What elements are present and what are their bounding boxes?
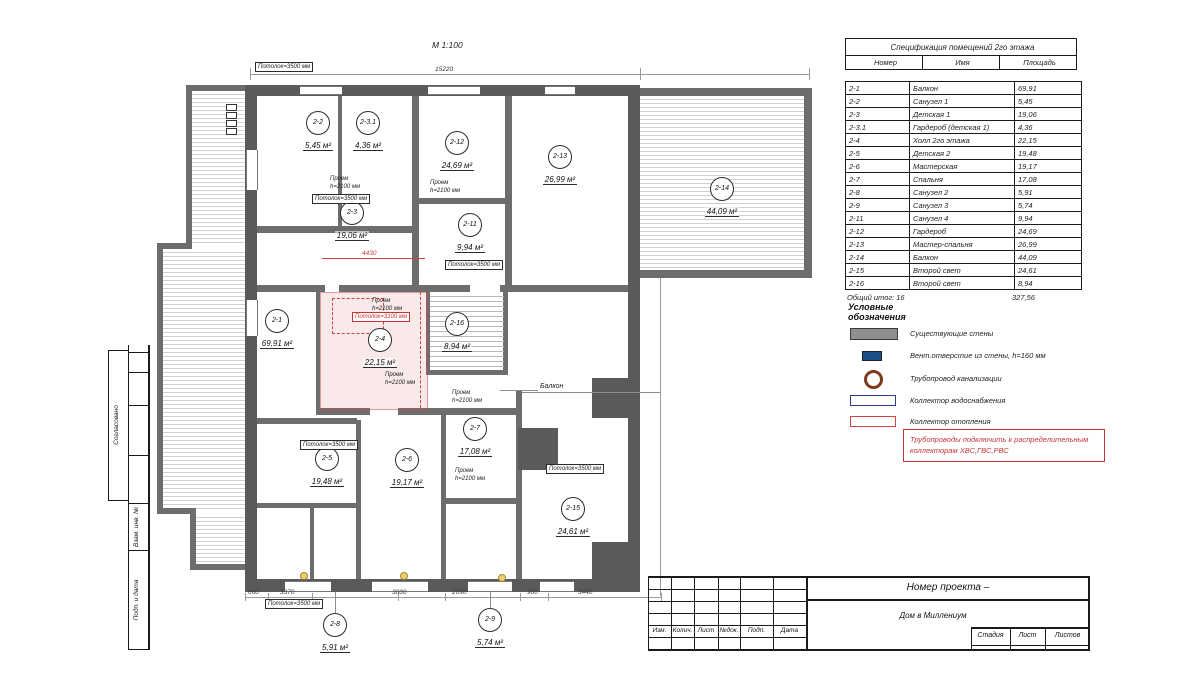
room-marker: 2-1224,69 м² [425, 131, 489, 173]
water-collector-symbol [850, 395, 896, 406]
room-number-bubble: 2-1 [265, 309, 289, 333]
room-area-unit: м² [387, 358, 395, 367]
title-block-line [648, 613, 806, 614]
room-area-value: 26,99 [545, 175, 565, 184]
cell-name: Мастерская [910, 160, 1015, 173]
room-area-unit: м² [414, 478, 422, 487]
balcony-text-label: Балкон [540, 383, 563, 390]
cell-num: 2-6 [846, 160, 910, 173]
table-row: 2-1Балкон69,91 [846, 82, 1082, 95]
room-marker: 2-3.14,36 м² [336, 111, 400, 153]
cell-num: 2-12 [846, 225, 910, 238]
cell-num: 2-14 [846, 251, 910, 264]
side-strip-line [128, 345, 129, 650]
opening-label-line2: h=2100 мм [452, 398, 482, 406]
red-dim-value: 4430 [362, 250, 376, 257]
room-area: 19,48 м² [310, 477, 344, 487]
room-area-value: 5,45 [305, 141, 321, 150]
room-marker: 2-619,17 м² [375, 448, 439, 490]
door-opening [470, 285, 500, 292]
room-area-value: 4,36 [355, 141, 371, 150]
room-area: 22,15 м² [363, 358, 397, 368]
wall-partition [505, 96, 512, 286]
room-area-value: 5,91 [322, 643, 338, 652]
window [540, 581, 574, 592]
dimension-tick [250, 68, 251, 80]
room-area-value: 19,48 [312, 477, 332, 486]
opening-label-line2: h=2100 мм [385, 380, 415, 388]
legend-item-label: Трубопровод канализации [910, 374, 1002, 383]
room-area: 5,74 м² [475, 638, 505, 648]
wall [640, 270, 812, 278]
dimension-value: 3370 [280, 589, 294, 596]
legend-title: Условные обозначения [848, 302, 906, 322]
room-area-value: 8,94 [444, 342, 460, 351]
axis-marker [498, 574, 506, 582]
axis-marker [300, 572, 308, 580]
room-area: 24,61 м² [556, 527, 590, 537]
spec-header-table: Спецификация помещений 2го этажа Номер И… [845, 38, 1077, 70]
wall [190, 564, 250, 570]
dimension-tick [661, 593, 662, 601]
rev-col-header: Лист [694, 627, 718, 634]
cell-area: 44,09 [1015, 251, 1082, 264]
cell-name: Гардероб [910, 225, 1015, 238]
room-area-value: 9,94 [457, 243, 473, 252]
opening-label: Проем h=2100 мм [385, 372, 415, 387]
table-row: 2-6Мастерская19,17 [846, 160, 1082, 173]
title-block-line [971, 645, 1090, 646]
cell-area: 19,17 [1015, 160, 1082, 173]
opening-label-line2: h=2100 мм [330, 184, 360, 192]
window [545, 86, 575, 95]
wall [186, 85, 250, 91]
table-row: 2-8Санузел 25,91 [846, 186, 1082, 199]
cell-num: 2-9 [846, 199, 910, 212]
opening-label-line2: h=2100 мм [372, 306, 402, 314]
side-strip-line [128, 455, 149, 456]
room-marker: 2-717,08 м² [443, 417, 507, 459]
wall [640, 88, 812, 96]
room-number-bubble: 2-14 [710, 177, 734, 201]
opening-label-line1: Проем [430, 180, 460, 188]
cell-num: 2-15 [846, 264, 910, 277]
room-area-unit: м² [475, 243, 483, 252]
balcony-hatch-left-lower [196, 514, 250, 566]
wall-partition [419, 198, 505, 204]
dimension-tick [245, 593, 246, 601]
cell-name: Санузел 1 [910, 95, 1015, 108]
wall [190, 508, 196, 570]
spec-table-title: Спецификация помещений 2го этажа [846, 39, 1077, 56]
leader-line [335, 592, 336, 613]
cell-num: 2-8 [846, 186, 910, 199]
cell-area: 69,91 [1015, 82, 1082, 95]
side-strip-line [108, 500, 129, 501]
title-block-line [806, 599, 1090, 601]
room-number-bubble: 2-9 [478, 608, 502, 632]
red-dim-line [322, 258, 425, 259]
room-area-value: 5,74 [477, 638, 493, 647]
table-row: 2-11Санузел 49,94 [846, 212, 1082, 225]
cell-area: 5,91 [1015, 186, 1082, 199]
cell-area: 9,94 [1015, 212, 1082, 225]
cell-name: Санузел 2 [910, 186, 1015, 199]
room-area-unit: м² [334, 477, 342, 486]
dimension-value: 960 [527, 589, 538, 596]
cell-area: 5,45 [1015, 95, 1082, 108]
room-number-bubble: 2-2 [306, 111, 330, 135]
title-block-line [648, 589, 806, 590]
room-number-bubble: 2-3.1 [356, 111, 380, 135]
ceiling-note: Потолок=3500 мм [300, 440, 358, 450]
room-number-bubble: 2-12 [445, 131, 469, 155]
room-area: 44,09 м² [705, 207, 739, 217]
room-number-bubble: 2-8 [323, 613, 347, 637]
existing-wall-symbol [850, 328, 898, 340]
cell-num: 2-2 [846, 95, 910, 108]
rev-col-header: Подп. [740, 627, 773, 634]
wall-partition [412, 96, 419, 291]
legend-item-label: Коллектор отопления [910, 417, 991, 426]
room-marker: 2-1326,99 м² [528, 145, 592, 187]
ceiling-note: Потолок=3500 мм [546, 464, 604, 474]
dimension-value: 3000 [392, 589, 406, 596]
cell-name: Санузел 4 [910, 212, 1015, 225]
cell-area: 26,99 [1015, 238, 1082, 251]
leader-line [490, 592, 491, 608]
wall [186, 85, 192, 249]
project-name: Дом в Миллениум [808, 611, 1058, 620]
room-area: 26,99 м² [543, 175, 577, 185]
room-marker: 2-1524,61 м² [541, 497, 605, 539]
room-marker: 2-519,48 м² [295, 447, 359, 489]
room-area: 19,06 м² [335, 231, 369, 241]
cell-name: Спальня [910, 173, 1015, 186]
window [468, 581, 512, 592]
stage-col-header: Стадия [971, 632, 1010, 639]
legend-item-label: Вент.отверстие из стены, h=160 мм [910, 351, 1046, 360]
opening-label-line1: Проем [385, 372, 415, 380]
room-marker: 2-169,91 м² [245, 309, 309, 351]
room-area-value: 17,08 [460, 447, 480, 456]
project-number-label: Номер проекта – [808, 582, 1088, 593]
cell-area: 8,94 [1015, 277, 1082, 290]
room-area: 9,94 м² [455, 243, 485, 253]
door-opening [325, 285, 339, 292]
ceiling-note: Потолок=3500 мм [265, 599, 323, 609]
table-row: 2-12Гардероб24,69 [846, 225, 1082, 238]
heating-pipe-line [420, 292, 421, 408]
wall-partition [257, 503, 357, 508]
cell-num: 2-4 [846, 134, 910, 147]
ceiling-note: Потолок=3500 мм [445, 260, 503, 270]
side-strip-line [108, 350, 129, 351]
table-row: 2-14Балкон44,09 [846, 251, 1082, 264]
title-block-line [971, 627, 1090, 629]
ceiling-note-red: Потолок=3100 мм [352, 312, 410, 322]
dimension-value: 2090 [452, 589, 466, 596]
cell-name: Второй свет [910, 264, 1015, 277]
vent-opening [226, 128, 237, 135]
room-number-bubble: 2-11 [458, 213, 482, 237]
piping-note-line1: Трубопроводы подключить к распределитель… [910, 434, 1098, 445]
dimension-tick [548, 593, 549, 601]
room-number-bubble: 2-4 [368, 328, 392, 352]
room-area-unit: м² [462, 342, 470, 351]
room-area-value: 24,61 [558, 527, 578, 536]
spec-col-area: Площадь [1000, 56, 1077, 70]
opening-label: Проем h=2100 мм [430, 180, 460, 195]
opening-label-line1: Проем [455, 468, 485, 476]
room-area: 17,08 м² [458, 447, 492, 457]
legend-item-label: Коллектор водоснабжения [910, 396, 1005, 405]
cell-area: 17,08 [1015, 173, 1082, 186]
cell-num: 2-3 [846, 108, 910, 121]
side-strip-line [128, 405, 149, 406]
room-marker: 2-319,06 м² [320, 201, 384, 243]
pier [592, 378, 630, 418]
table-row: 2-9Санузел 35,74 [846, 199, 1082, 212]
room-marker: 2-119,94 м² [438, 213, 502, 255]
room-number-bubble: 2-15 [561, 497, 585, 521]
dimension-tick [809, 68, 810, 80]
spec-total-value: 327,56 [1012, 293, 1035, 302]
room-number-bubble: 2-6 [395, 448, 419, 472]
rev-col-header: Колич. [671, 627, 694, 634]
window [428, 86, 480, 95]
room-area-unit: м² [464, 161, 472, 170]
cell-num: 2-3.1 [846, 121, 910, 134]
cell-name: Гардероб (детская 1) [910, 121, 1015, 134]
vent-symbol [862, 351, 882, 361]
wall [804, 88, 812, 278]
room-area: 19,17 м² [390, 478, 424, 488]
title-block-line [1088, 576, 1090, 651]
wall-partition [426, 370, 508, 375]
cell-area: 5,74 [1015, 199, 1082, 212]
title-block-line [648, 601, 806, 602]
dimension-line [245, 597, 662, 598]
wall-partition [257, 285, 628, 292]
table-row: 2-2Санузел 15,45 [846, 95, 1082, 108]
sewer-pipe-symbol [864, 370, 883, 389]
ceiling-note: Потолок=3500 мм [255, 62, 313, 72]
wall-partition [441, 498, 521, 504]
heating-collector-symbol [850, 416, 896, 427]
floor-plan: М 1:100 [0, 0, 840, 675]
room-area-value: 19,17 [392, 478, 412, 487]
balcony-door [246, 150, 258, 190]
room-marker: 2-85,91 м² [303, 613, 367, 655]
cell-area: 4,36 [1015, 121, 1082, 134]
pier [592, 542, 630, 580]
opening-label-line1: Проем [330, 176, 360, 184]
room-area-value: 69,91 [262, 339, 282, 348]
title-block-line [648, 649, 1090, 651]
rev-col-header: №док. [718, 627, 740, 634]
room-area-unit: м² [373, 141, 381, 150]
room-number-bubble: 2-13 [548, 145, 572, 169]
opening-label-line1: Проем [452, 390, 482, 398]
cell-area: 19,48 [1015, 147, 1082, 160]
stage-col-header: Листов [1045, 632, 1090, 639]
dimension-tick [520, 593, 521, 601]
wall-partition [516, 390, 522, 579]
table-row: 2-3.1Гардероб (детская 1)4,36 [846, 121, 1082, 134]
opening-label-line1: Проем [372, 298, 402, 306]
room-marker: 2-168,94 м² [425, 312, 489, 354]
room-number-bubble: 2-5 [315, 447, 339, 471]
axis-marker [400, 572, 408, 580]
opening-label: Проем h=2100 мм [372, 298, 402, 313]
room-area-value: 44,09 [707, 207, 727, 216]
opening-label: Проем h=2100 мм [452, 390, 482, 405]
room-marker: 2-95,74 м² [458, 608, 522, 650]
cell-num: 2-13 [846, 238, 910, 251]
cell-name: Мастер-спальня [910, 238, 1015, 251]
room-area: 8,94 м² [442, 342, 472, 352]
piping-note: Трубопроводы подключить к распределитель… [903, 429, 1105, 462]
table-row: 2-16Второй свет8,94 [846, 277, 1082, 290]
side-strip-line [128, 352, 149, 353]
cell-name: Холл 2го этажа [910, 134, 1015, 147]
cell-name: Второй свет [910, 277, 1015, 290]
wall-partition [257, 418, 357, 424]
dimension-line [660, 278, 661, 596]
dimension-line [250, 74, 810, 75]
table-row: 2-13Мастер-спальня26,99 [846, 238, 1082, 251]
dimension-value: 15220 [435, 66, 453, 73]
vent-opening [226, 104, 237, 111]
rev-col-header: Дата [773, 627, 806, 634]
dimension-value: 3440 [578, 589, 592, 596]
window [300, 86, 342, 95]
cell-num: 2-7 [846, 173, 910, 186]
cell-area: 19,06 [1015, 108, 1082, 121]
room-spec-table: Спецификация помещений 2го этажа Номер И… [845, 38, 1077, 304]
cell-num: 2-5 [846, 147, 910, 160]
spec-col-name: Имя [923, 56, 1000, 70]
wall-exterior [628, 85, 640, 590]
dimension-value: 660 [248, 589, 259, 596]
dimension-tick [640, 68, 641, 80]
balcony-hatch-left-upper [192, 91, 250, 245]
table-row: 2-4Холл 2го этажа22,15 [846, 134, 1082, 147]
room-area-unit: м² [323, 141, 331, 150]
spec-col-num: Номер [846, 56, 923, 70]
room-area-unit: м² [359, 231, 367, 240]
cell-num: 2-11 [846, 212, 910, 225]
cell-name: Балкон [910, 82, 1015, 95]
room-area-unit: м² [495, 638, 503, 647]
room-number-bubble: 2-3 [340, 201, 364, 225]
opening-label-line2: h=2100 мм [430, 188, 460, 196]
balcony-edge-line [522, 392, 660, 393]
opening-label-line2: h=2100 мм [455, 476, 485, 484]
room-area-unit: м² [340, 643, 348, 652]
balcony-hatch-left-mid [163, 249, 250, 510]
title-block-line [648, 637, 806, 638]
floorplan-sheet: { "plan": { "scale": "М 1:100", "area_un… [0, 0, 1200, 675]
cell-num: 2-16 [846, 277, 910, 290]
side-strip-line [128, 372, 149, 373]
room-area: 5,45 м² [303, 141, 333, 151]
cell-area: 24,61 [1015, 264, 1082, 277]
cell-area: 24,69 [1015, 225, 1082, 238]
table-row: 2-3Детская 119,06 [846, 108, 1082, 121]
room-area-unit: м² [567, 175, 575, 184]
spec-gap [845, 70, 1077, 81]
spec-body-table: 2-1Балкон69,91 2-2Санузел 15,45 2-3Детск… [845, 81, 1082, 290]
title-block-line [648, 625, 806, 626]
table-row: 2-15Второй свет24,61 [846, 264, 1082, 277]
room-area: 24,69 м² [440, 161, 474, 171]
cell-name: Балкон [910, 251, 1015, 264]
cell-name: Детская 2 [910, 147, 1015, 160]
side-strip-line [108, 350, 109, 500]
stage-col-header: Лист [1010, 632, 1045, 639]
room-area-unit: м² [729, 207, 737, 216]
legend-item-label: Существующие стены [910, 329, 993, 338]
room-area-value: 22,15 [365, 358, 385, 367]
room-area: 69,91 м² [260, 339, 294, 349]
wall-partition [310, 503, 314, 579]
room-area: 5,91 м² [320, 643, 350, 653]
room-area: 4,36 м² [353, 141, 383, 151]
dimension-tick [445, 593, 446, 601]
cell-name: Санузел 3 [910, 199, 1015, 212]
room-area-value: 19,06 [337, 231, 357, 240]
cell-num: 2-1 [846, 82, 910, 95]
room-marker: 2-422,15 м² [348, 328, 412, 370]
ceiling-note: Потолок=3500 мм [312, 194, 370, 204]
spec-total-label: Общий итог: 16 [847, 293, 905, 302]
leader-line [500, 390, 538, 391]
room-marker: 2-1444,09 м² [690, 177, 754, 219]
cell-name: Детская 1 [910, 108, 1015, 121]
wall [157, 243, 163, 514]
vent-opening [226, 120, 237, 127]
piping-note-line2: коллекторам ХВС,ГВС,РВС [910, 445, 1098, 456]
room-number-bubble: 2-16 [445, 312, 469, 336]
rev-col-header: Изм. [648, 627, 671, 634]
room-area-unit: м² [482, 447, 490, 456]
opening-label: Проем h=2100 мм [330, 176, 360, 191]
table-row: 2-5Детская 219,48 [846, 147, 1082, 160]
side-strip-line [148, 345, 150, 650]
room-number-bubble: 2-7 [463, 417, 487, 441]
title-block-line [648, 576, 1090, 578]
table-row: 2-7Спальня17,08 [846, 173, 1082, 186]
opening-label: Проем h=2100 мм [455, 468, 485, 483]
scale-label: М 1:100 [432, 40, 463, 50]
side-strip-label: Согласовано [113, 370, 123, 480]
room-area-value: 24,69 [442, 161, 462, 170]
room-area-unit: м² [284, 339, 292, 348]
cell-area: 22,15 [1015, 134, 1082, 147]
room-area-unit: м² [580, 527, 588, 536]
side-strip-label: Подп. и дата [133, 545, 143, 655]
vent-opening [226, 112, 237, 119]
